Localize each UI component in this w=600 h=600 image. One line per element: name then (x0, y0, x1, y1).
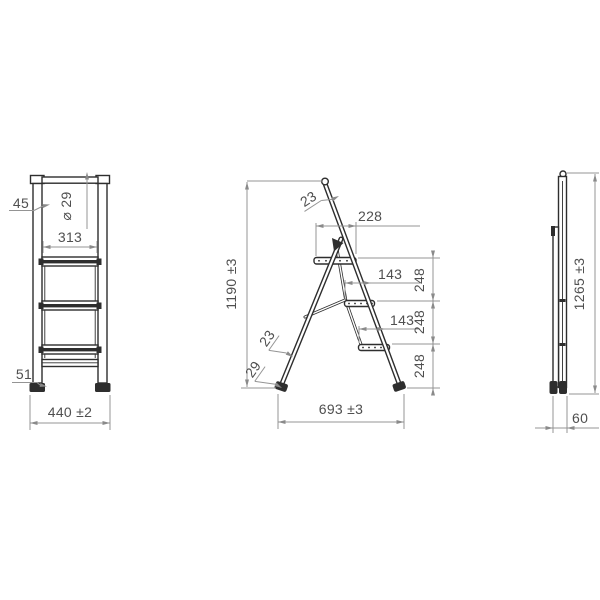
front-step-2 (39, 301, 102, 310)
side-right-foot (392, 381, 406, 393)
folded-hinge (551, 226, 555, 236)
dim-label-front-rail: 23 (256, 327, 278, 349)
dim-label-rail-width: 45 (13, 195, 29, 211)
dim-label-inner-width: 313 (58, 229, 82, 245)
dim-label-folded-depth: 60 (572, 410, 588, 426)
front-right-foot (95, 383, 111, 392)
front-left-rail (33, 184, 42, 384)
dim-label-base-spread: 693 ±3 (319, 401, 364, 417)
dim-front-overall-width: 440 ±2 (30, 395, 110, 430)
dim-folded-height: 1265 ±3 (567, 173, 599, 394)
dim-label-overall-width: 440 ±2 (48, 404, 93, 420)
dim-label-folded-height: 1265 ±3 (571, 258, 587, 311)
front-top-tube (42, 177, 98, 183)
side-view-ladder (274, 178, 406, 392)
drawing-sheet: 45 ⌀ 29 313 51 (0, 0, 600, 600)
dim-front-rail-width: 45 (9, 195, 50, 211)
front-view: 45 ⌀ 29 313 51 (9, 172, 111, 430)
dim-side-base-width: 693 ±3 (278, 394, 404, 429)
front-right-rail (98, 184, 107, 384)
front-bottom-bar (42, 360, 98, 367)
dim-side-overall-height: 1190 ±3 (223, 181, 322, 388)
dim-label-step-depth-1: 143 (378, 266, 402, 282)
front-step-3 (39, 345, 102, 354)
dim-folded-depth: 60 (535, 396, 599, 433)
side-view: 1190 ±3 23 228 143 (223, 178, 440, 429)
dim-side-platform-depth: 228 (316, 208, 420, 256)
side-left-foot (274, 381, 288, 393)
folded-front-rail (553, 227, 559, 387)
front-step-1 (39, 257, 102, 266)
dim-label-foot-height: 51 (16, 366, 32, 382)
dim-label-overall-height: 1190 ±3 (223, 258, 239, 310)
dim-label-step-spacing-3: 248 (411, 354, 427, 378)
dim-label-platform-depth: 228 (358, 208, 382, 224)
dim-label-top-rail: 23 (297, 188, 319, 210)
folded-view: 1265 ±3 60 (535, 171, 599, 433)
folded-foot-2 (559, 381, 567, 394)
dim-label-tube-diameter: ⌀ 29 (58, 191, 74, 220)
dim-front-inner-width: 313 (43, 229, 97, 253)
folded-ladder (550, 171, 568, 394)
technical-drawing: 45 ⌀ 29 313 51 (0, 0, 600, 600)
side-apex-cap (322, 178, 329, 185)
dim-label-foot-depth: 29 (242, 358, 264, 380)
dim-label-step-spacing-1: 248 (411, 268, 427, 292)
dim-label-step-spacing-2: 248 (411, 310, 427, 334)
dim-side-front-rail: 23 (256, 327, 293, 357)
folded-foot-1 (550, 381, 558, 394)
side-front-rail (281, 239, 341, 386)
